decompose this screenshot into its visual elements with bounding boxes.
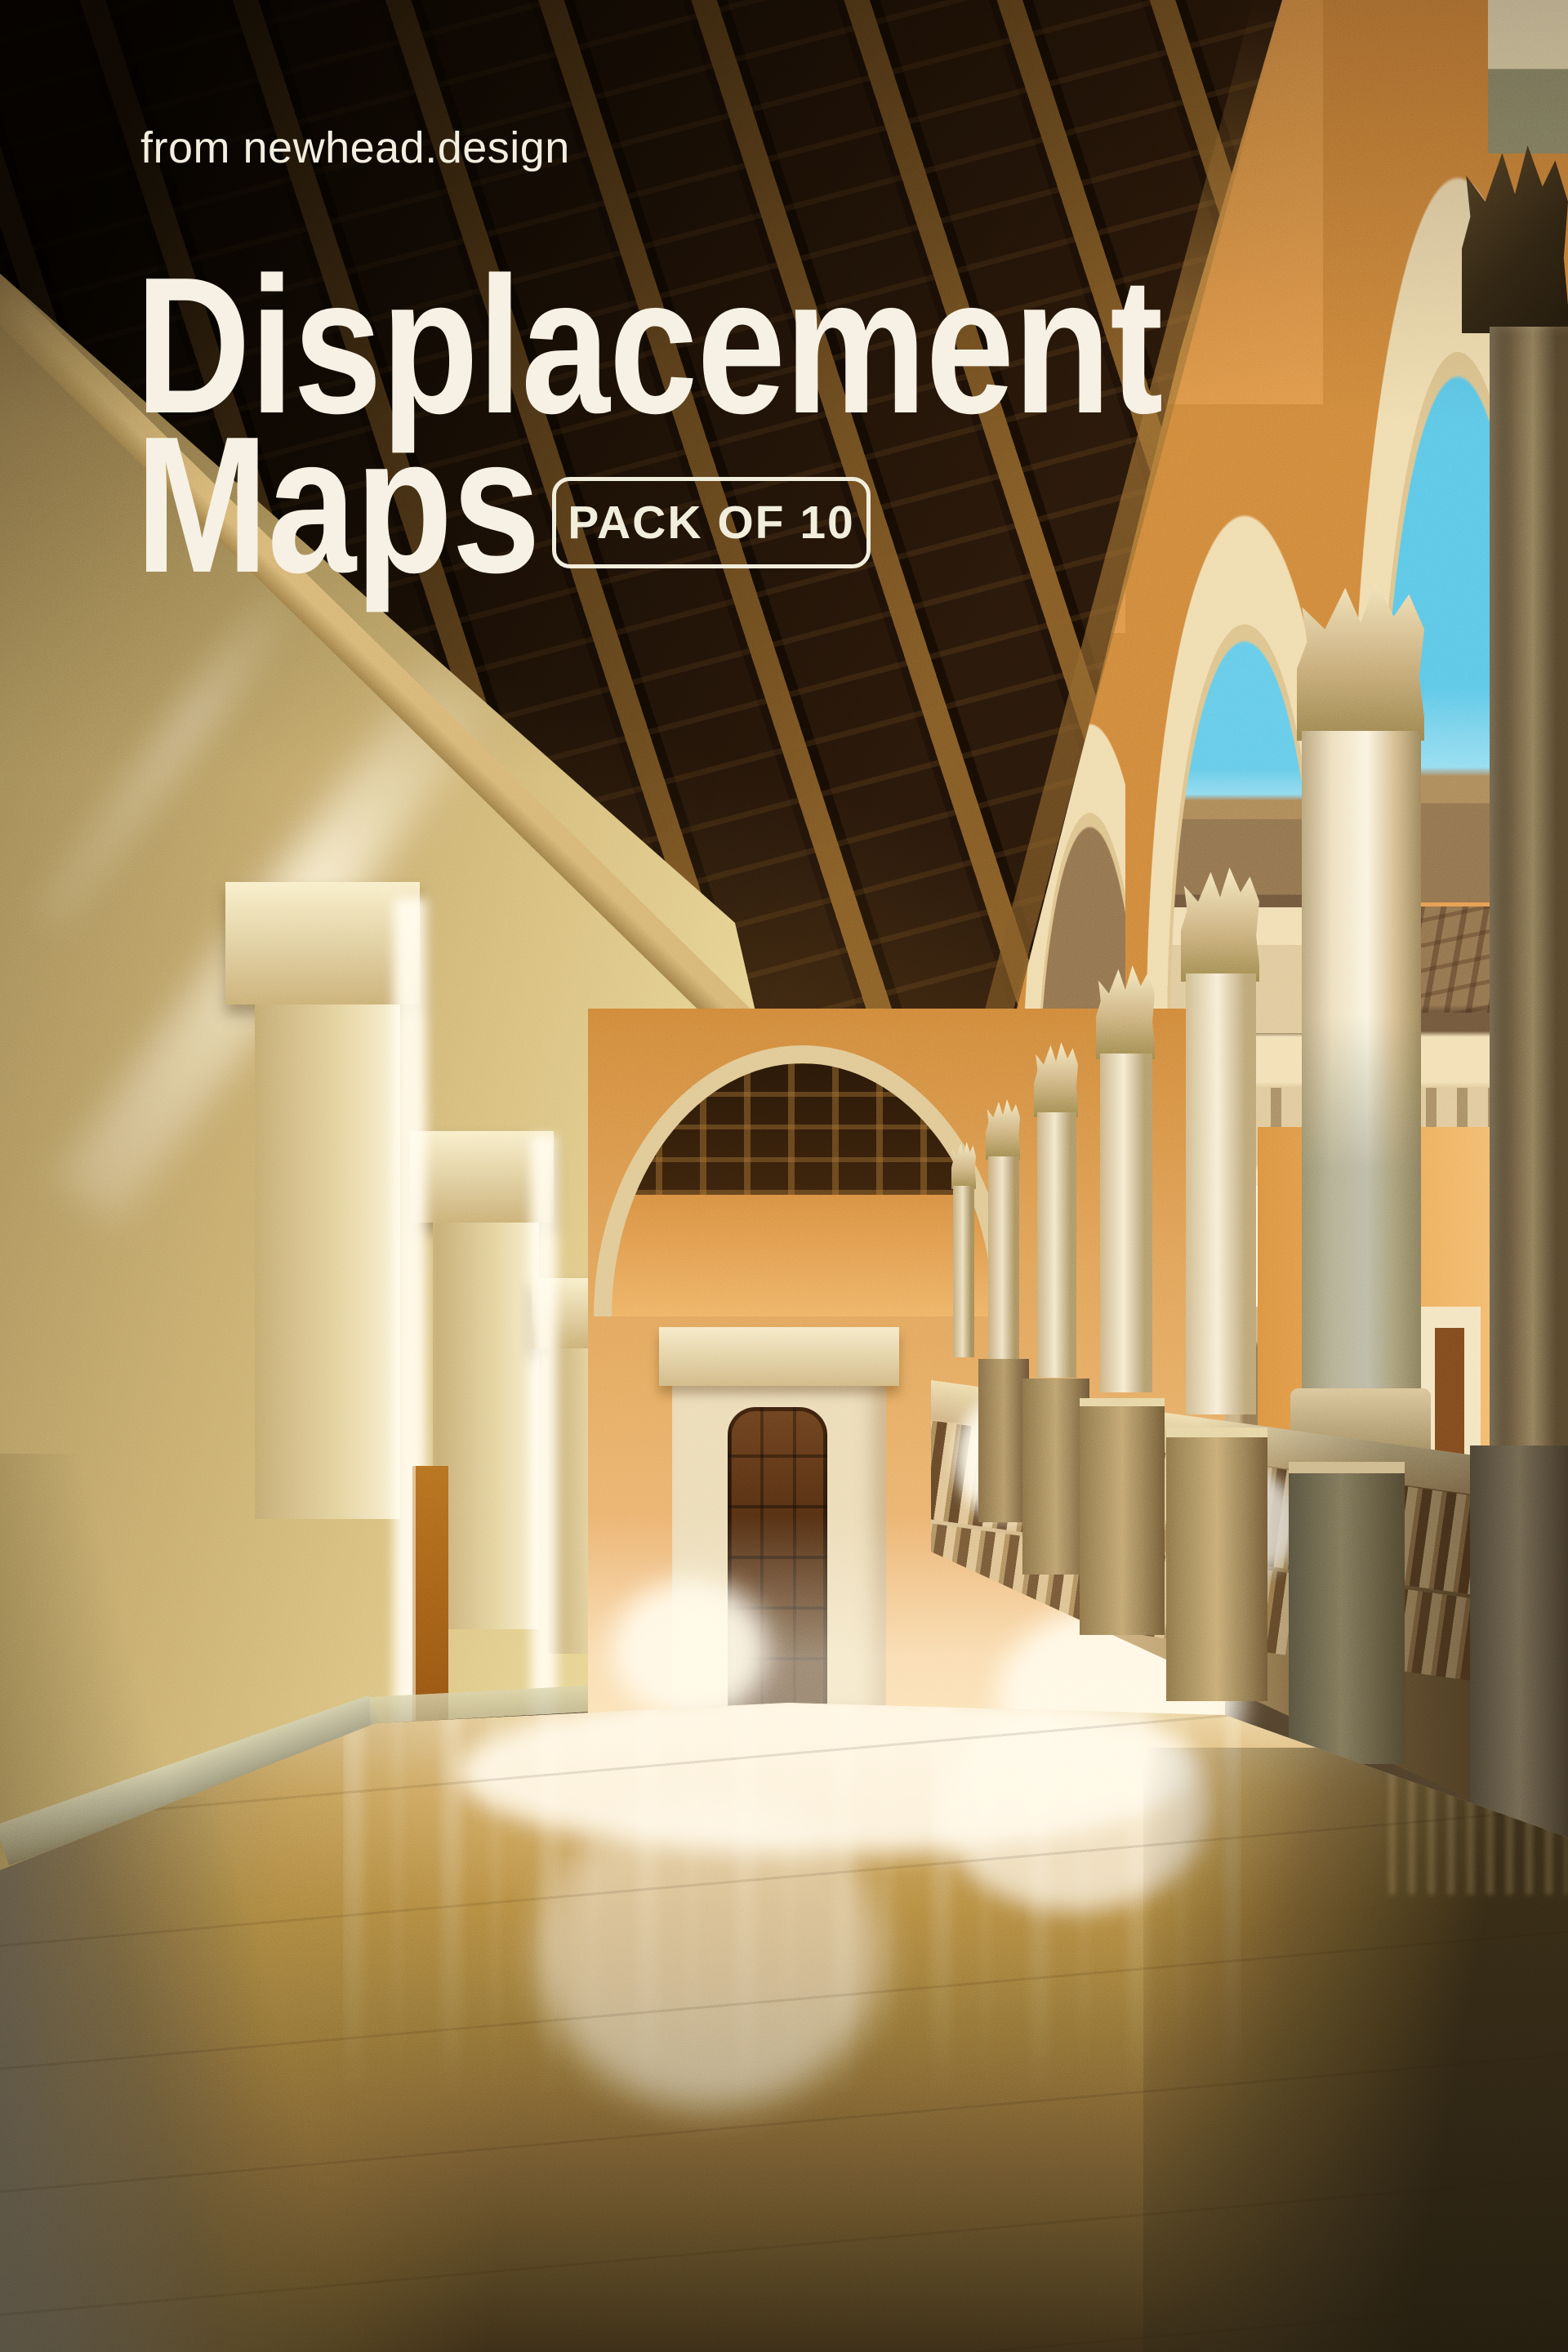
pedestal: [1166, 1428, 1267, 1701]
stone-pier: [1488, 0, 1568, 154]
column-shaft: [1037, 1112, 1076, 1378]
brand-credit: from newhead.design: [140, 122, 570, 173]
doorframe-jamb: [255, 1004, 400, 1519]
pediment-cornice: [225, 882, 420, 1004]
doorframe-pediment: [245, 882, 400, 1519]
column-shaft: [1100, 1053, 1152, 1392]
column-shaft: [988, 1156, 1019, 1361]
column-shaft: [953, 1186, 974, 1357]
pedestal: [978, 1359, 1029, 1522]
column-shaft: [1186, 973, 1256, 1414]
column-shaft: [1302, 731, 1421, 1437]
pack-badge-label: PACK OF 10: [568, 496, 855, 550]
column-shaft: [1490, 327, 1568, 1454]
doorframe-jamb: [433, 1223, 539, 1629]
pedestal: [1080, 1398, 1165, 1635]
pedestal: [1289, 1462, 1405, 1764]
glossy-floor: [0, 1699, 1568, 2352]
floor-tile-joints: [0, 1699, 1568, 2352]
pack-badge: PACK OF 10: [552, 477, 871, 568]
pedestal: [1470, 1445, 1568, 1854]
poster: from newhead.design Displacement Maps PA…: [0, 0, 1568, 2352]
